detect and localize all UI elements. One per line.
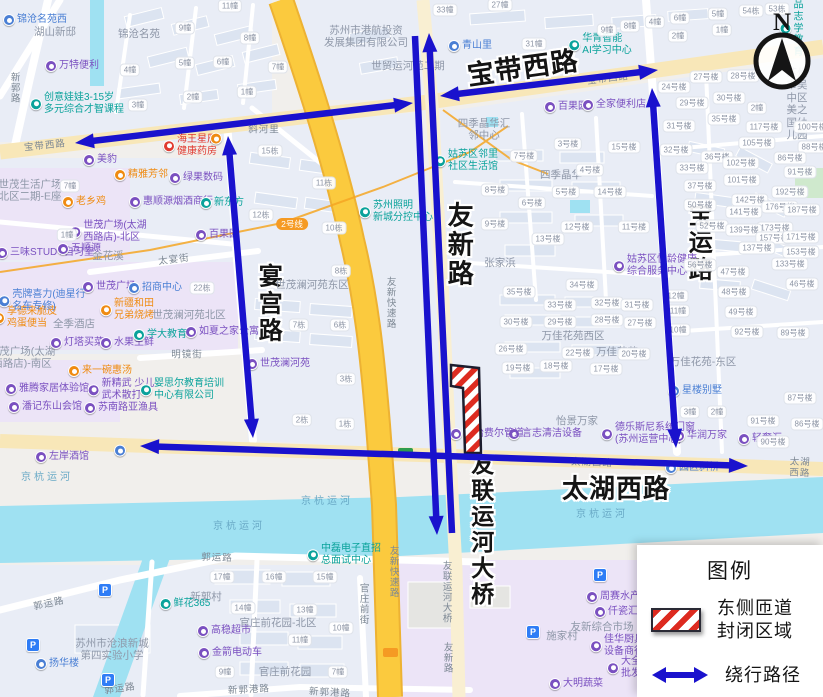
big-road-label: 宝运路 [685,203,709,284]
road-label: 新郭路 [8,72,19,104]
poi-pin [140,384,152,396]
poi-label: 德乐斯尼系统门窗 (苏州运营中心) [601,422,695,446]
building-badge: 35号楼 [708,113,741,126]
area-label: 施家村 [546,630,578,642]
building-badge: 10栋 [322,222,347,235]
waterway-label: 京杭运河 [213,521,265,533]
building-badge: 117号楼 [746,121,783,134]
poi-label: 苏州照明 新城分控中心 [359,200,433,224]
building-badge: 8号楼 [481,184,509,197]
poi-pin [88,384,100,396]
building-badge: 14号楼 [594,186,627,199]
building-badge: 13号楼 [532,233,565,246]
building-badge: 10幢 [666,324,691,337]
poi-label: 婴思尔教育培训 中心有限公司 [140,378,224,402]
poi-label: 园区斜桥 [665,462,719,474]
poi-pin [200,197,212,209]
poi-label: 享德来脆皮 鸡蛋便当 [0,306,57,330]
area-label: 张家浜 [484,257,516,269]
poi-pin [586,591,598,603]
poi-label: 金箭电动车 [198,647,262,659]
building-badge: 28号楼 [591,314,624,327]
area-label: 苏州市沧浪新城 第四实验小学 [75,638,149,663]
poi-pin [133,329,145,341]
poi-label: 姑苏区邻里 社区生活馆 [434,149,498,173]
building-badge: 53栋 [765,3,790,16]
building-badge: 10幢 [329,622,354,635]
poi-pin [434,155,446,167]
building-badge: 56号楼 [684,259,717,272]
poi-label: 中磊电子直招 总面试中心 [307,543,381,567]
poi-label: 星楼别墅 [668,385,722,397]
poi-pin [590,640,602,652]
poi-label: 新精武 少儿 武术散打 [88,378,155,402]
building-badge: 33幢 [433,4,458,17]
road-label: 郭运路 [201,552,233,564]
poi-label: 来一碗惠汤 [68,365,132,377]
poi-label: 华润万家 [673,430,727,442]
building-badge: 9幢 [597,24,617,37]
building-badge: 91号楼 [784,166,817,179]
building-badge: 86号楼 [774,152,807,165]
road-label: 新郭港路 [309,686,352,697]
poi-label: 姑苏区悦龄健康 综合服务中心 [613,254,697,278]
building-badge: 15栋 [258,145,283,158]
poi-pin [582,99,594,111]
road-label: 友新快速路 [387,546,398,599]
building-badge: 32号楼 [591,297,624,310]
poi-label: 世茂澜河苑 [246,358,310,370]
poi-label: 三味STUDY自习室 [0,247,94,259]
area-label: 世贸运河苑二期 [371,60,445,72]
area-label: 世茂澜河苑北区 [152,309,226,321]
poi-label: 水果生鲜 [100,337,154,349]
big-road-label: 太湖西路 [562,476,670,503]
poi-pin [780,23,792,35]
poi-pin [307,549,319,561]
road-label: 宝带西路 [24,138,67,154]
poi-label: 灯塔买菜 [50,337,104,349]
poi-pin [738,433,750,445]
area-label: 世茂生活广场 北区二期-E座 [0,179,62,204]
area-label: 万佳花苑-东区 [670,356,737,368]
poi-pin [163,140,175,152]
poi-pin [114,169,126,181]
big-road-label: 宴宫路 [255,264,279,345]
building-badge: 30号楼 [500,316,533,329]
poi-pin [169,172,181,184]
poi-label: 学大教育 [133,329,187,341]
poi-pin [0,312,5,324]
poi-pin [0,295,10,307]
building-badge: 52号楼 [696,220,729,233]
poi-pin [160,598,172,610]
poi-pin [68,365,80,377]
waterway-label: 京杭运河 [21,472,73,484]
building-badge: 27号楼 [690,71,723,84]
building-badge: 8栋 [331,265,351,278]
area-label: 全季酒店 [53,318,95,330]
building-badge: 9号楼 [481,218,509,231]
poi-label: 美豹 [83,154,117,166]
building-badge: 6栋 [330,319,350,332]
road-label: 太湖西路 [788,456,812,479]
poi-pin [62,196,74,208]
poi-pin [448,40,460,52]
poi-label: 百果园 [195,229,239,241]
building-badge: 8幢 [240,32,260,45]
metro-line-badge: 2号线 [276,218,308,230]
building-badge: 3幢 [128,99,148,112]
building-badge: 192号楼 [771,186,808,199]
poi-pin [246,358,258,370]
poi-label: 中冶费尔管道 [450,428,524,440]
building-badge: 33号楼 [544,299,577,312]
building-badge: 32号楼 [660,144,693,157]
building-badge: 17幢 [210,571,235,584]
poi-label: 海王星辰 健康药房 [163,134,217,158]
poi-pin [5,383,17,395]
building-badge: 29号楼 [544,316,577,329]
legend-item-closure: 东侧匝道 封闭区域 [651,597,793,642]
building-badge: 31幢 [522,38,547,51]
building-badge: 19号楼 [502,362,535,375]
building-badge: 22号楼 [562,347,595,360]
building-badge: 11幢 [666,305,690,318]
legend-item-detour: 绕行路径 [651,663,801,687]
poi-label: 言志清洁设备 [508,428,582,440]
poi-label: 周赛水产 [586,591,640,603]
closure-label: 东侧匝道 封闭区域 [717,597,793,642]
poi-label: 华青智能 AI学习中心 [568,33,631,57]
poi-label: 佳华厨具 设备商行 [590,634,644,658]
poi-pin [673,430,685,442]
building-badge: 92号楼 [731,326,764,339]
building-badge: 101号楼 [723,174,760,187]
parking-icon: P [526,625,540,639]
area-label: 世茂广场(太湖 西路店)-南区 [0,346,55,371]
building-badge: 7幢 [328,666,348,679]
poi-pin [50,337,62,349]
parking-icon: P [98,583,112,597]
poi-pin [129,196,141,208]
poi-pin [601,428,613,440]
building-badge: 100号楼 [793,121,823,134]
building-badge: 7幢 [268,61,288,74]
poi-pin [35,451,47,463]
building-badge: 1幢 [712,24,732,37]
building-badge: 1幢 [237,86,257,99]
building-badge: 46号楼 [786,278,819,291]
building-badge: 142号楼 [731,194,768,207]
poi-label: 苏南路亚渔具 [84,402,158,414]
big-road-label: 友新路 [446,202,473,289]
area-label: 万佳花苑西区 [542,330,605,342]
map-canvas[interactable]: 宝带西路友新路宝运路宴宫路太湖西路友联运河大桥京杭运河京杭运河京杭运河京杭运河宝… [0,0,823,697]
poi-pin [568,39,580,51]
legend: 图例 东侧匝道 封闭区域 绕行路径 [637,545,823,697]
building-badge: 27幢 [488,0,513,12]
building-badge: 49号楼 [725,306,758,319]
poi-label: 仟瓷汇 [594,606,638,618]
building-badge: 9幢 [175,22,195,35]
building-badge: 2幢 [183,91,203,104]
building-badge: 141号楼 [725,206,762,219]
waterway-label: 京杭运河 [576,509,628,521]
poi-pin [544,101,556,113]
big-road-label: 宝带西路 [466,48,581,91]
poi-label: 左岸酒馆 [35,451,89,463]
building-badge: 50号楼 [684,199,717,212]
building-badge: 15号楼 [608,141,641,154]
building-badge: 12栋 [249,209,274,222]
building-badge: 2幢 [668,30,688,43]
poi-label: 招商中心 [128,282,182,294]
poi-pin [210,132,222,151]
building-badge: 30号楼 [713,92,746,105]
building-badge: 5幢 [175,57,195,70]
waterway-label: 京杭运河 [301,496,353,508]
poi-pin [82,281,94,293]
building-badge: 6幢 [670,12,690,25]
road-label: 斜河里 [248,124,280,135]
building-badge: 47号楼 [717,266,750,279]
poi-pin [83,154,95,166]
building-badge: 4幢 [120,64,140,77]
parking-icon: P [593,568,607,582]
area-label: 苏州市港航投资 发展集团有限公司 [324,25,408,50]
building-badge: 176号楼 [761,201,798,214]
area-label: 官庄前花园-北区 [240,617,317,629]
area-label: 怡景万家 [556,415,598,427]
building-badge: 133号楼 [771,258,808,271]
legend-title: 图例 [637,555,823,585]
building-badge: 173号楼 [756,222,793,235]
building-badge: 87号楼 [784,392,817,405]
building-badge: 2幢 [747,102,767,115]
poi-pin [197,625,209,637]
building-badge: 3号楼 [554,138,582,151]
building-badge: 86号楼 [791,418,823,431]
road-label: 郭运路 [32,595,65,613]
building-badge: 12号楼 [561,221,594,234]
poi-label: 品志学教育 [780,0,809,58]
poi-label: 全家便利店 [582,99,646,111]
parking-icon: P [26,638,40,652]
road-label: 明镜街 [171,349,203,360]
big-road-label: 友联运河大桥 [468,452,491,608]
area-label: 官庄前花园 [259,666,312,678]
poi-pin [57,243,69,255]
poi-pin [665,462,677,474]
road-label: 太湖西路 [571,457,613,470]
building-badge: 7号楼 [510,150,538,163]
building-badge: 7栋 [289,319,309,332]
building-badge: 7幢 [60,180,80,193]
poi-label: 世茂广场 [82,281,136,293]
area-label: 四季晶华 [540,169,582,181]
road-label: 太宴街 [158,253,191,268]
building-badge: 16幢 [262,571,287,584]
building-badge: 29号楼 [676,97,709,110]
poi-pin [114,445,126,457]
poi-pin [185,326,197,338]
poi-pin [359,206,371,218]
area-label: 金花溪 [92,250,124,262]
poi-pin [594,606,606,618]
poi-pin [100,304,112,316]
poi-label: 鲜花365 [160,598,211,610]
building-badge: 153号楼 [782,246,819,259]
building-badge: 37号楼 [684,180,717,193]
poi-label: 五顺源 [57,243,101,255]
building-badge: 34号楼 [566,279,599,292]
poi-label: 世茂广场(太湖 西路店)-北区 [69,220,146,244]
area-label: 四季晶华汇 邻中心 [458,118,511,143]
building-badge: 35号楼 [503,286,536,299]
building-badge: 5号楼 [552,186,580,199]
poi-pin [0,247,8,259]
poi-pin [84,402,96,414]
poi-label: 潘记东山会馆 [8,401,82,413]
building-badge: 2栋 [292,414,312,427]
area-label: 湖山新邸 [34,26,76,38]
building-badge: 137号楼 [738,242,775,255]
building-badge: 91号楼 [747,415,780,428]
building-badge: 18号楼 [540,360,573,373]
poi-label: 壳牌喜力(迪星行 名车专修) [0,289,86,313]
building-badge: 102号楼 [722,157,759,170]
poi-label: 绿果数码 [169,172,223,184]
poi-pin [450,428,462,440]
building-badge: 3幢 [680,406,700,419]
building-badge: 15幢 [313,571,338,584]
area-label: 锦沧名苑 [118,28,160,40]
building-badge: 12幢 [664,290,689,303]
area-label: 万佳花苑 [596,346,638,358]
building-badge: 24号楼 [658,81,691,94]
poi-label: 万特便利 [45,60,99,72]
building-badge: 8幢 [620,20,640,33]
building-badge: 11号楼 [618,221,650,234]
building-badge: 26号楼 [495,343,528,356]
poi-pin [35,658,47,670]
poi-label: 大明蔬菜 [549,678,603,690]
building-badge: 31号楼 [663,120,696,133]
building-badge: 48号楼 [718,286,751,299]
poi-label: 雅腾家居体验馆 [5,383,89,395]
poi-pin [195,229,207,241]
area-label: 苏州市吴中区 美之国幼儿园 [784,67,810,141]
building-badge: 22栋 [190,282,215,295]
poi-label: 新东方 [200,197,244,209]
poi-pin [613,260,625,272]
closure-swatch-icon [651,608,701,632]
poi-label: 青山里 [448,40,492,52]
building-badge: 6号楼 [518,197,546,210]
poi-label: 百果园 [544,101,588,113]
road-label: 友联运河大桥 [440,561,451,624]
building-badge: 139号楼 [725,224,762,237]
detour-arrow-icon [651,663,709,687]
area-label: 新郭村 [190,591,222,603]
building-badge: 2幢 [707,406,727,419]
building-badge: 4幢 [645,16,665,29]
building-badge: 54栋 [739,5,764,18]
poi-pin [100,337,112,349]
building-badge: 90号楼 [757,436,790,449]
poi-label: 轻奢汇 [738,433,782,445]
building-badge: 1栋 [335,418,355,431]
building-badge: 11栋 [312,177,336,190]
poi-label: 老乡鸡 [62,196,106,208]
building-badge: 3栋 [336,373,356,386]
building-badge: 27号楼 [624,317,657,330]
poi-label: 高稳超市 [197,625,251,637]
area-label: 友新综合市场 [571,621,634,633]
building-badge: 1幢 [57,229,77,242]
building-badge: 9幢 [215,666,235,679]
road-label: 新郭港路 [228,683,271,696]
building-badge: 88号楼 [798,141,823,154]
building-badge: 28号楼 [727,70,760,83]
building-badge: 36号楼 [701,151,734,164]
building-badge: 11幢 [288,634,312,647]
building-badge: 157号楼 [755,232,792,245]
building-badge: 5幢 [708,8,728,21]
poi-label: 创意娃娃3-15岁 多元综合才智课程 [30,92,124,116]
poi-pin [114,444,126,463]
poi-label: 精雅芳邻 [114,169,168,181]
detour-label: 绕行路径 [725,664,801,687]
poi-label: 新疆和田 兄弟烧烤 [100,298,154,322]
building-badge: 17号楼 [590,363,623,376]
poi-pin [128,282,140,294]
poi-pin [549,678,561,690]
road-label: 宝带西路 [586,71,629,87]
poi-pin [45,60,57,72]
building-badge: 89号楼 [777,327,810,340]
building-badge: 171号楼 [782,231,819,244]
building-badge: 105号楼 [738,137,775,150]
poi-label: 惠顺源烟酒商行 [129,196,213,208]
building-badge: 31号楼 [621,299,654,312]
poi-pin [668,385,680,397]
poi-pin [8,401,20,413]
building-badge: 187号楼 [783,204,820,217]
building-badge: 20号楼 [618,348,651,361]
area-label: 世茂澜河苑东区 [275,279,349,291]
road-label: 友新快速路 [384,277,395,330]
building-badge: 33号楼 [676,162,709,175]
parking-icon: P [101,673,115,687]
road-label: 友新路 [441,642,452,674]
road-label: 郭运路 [104,681,137,696]
building-badge: 14幢 [231,602,256,615]
road-label: 官庄前街 [357,583,368,625]
building-badge: 6幢 [213,56,233,69]
poi-pin [508,428,520,440]
poi-pin [210,133,222,145]
poi-label: 扬华楼 [35,658,79,670]
poi-label: 如夏之家公寓 [185,326,259,338]
poi-pin [198,647,210,659]
building-badge: 13幢 [293,604,318,617]
building-badge: 11幢 [218,0,242,13]
poi-pin [607,662,619,674]
poi-pin [30,98,42,110]
poi-pin [69,226,81,238]
